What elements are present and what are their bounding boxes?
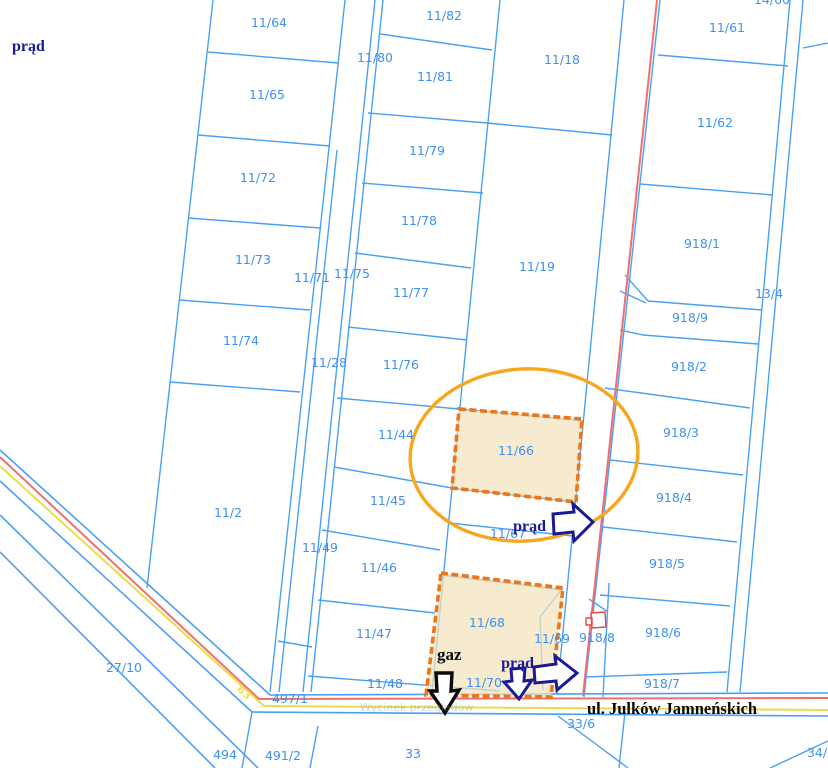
parcel-label-11-47: 11/47: [356, 626, 392, 641]
parcel-label-11-74: 11/74: [223, 333, 259, 348]
parcel-boundaries-strips: [270, 0, 383, 692]
parcel-label-11-62: 11/62: [697, 115, 733, 130]
parcel-label-918-5: 918/5: [649, 556, 685, 571]
gasmark-label-4: 63: [234, 683, 254, 703]
parcel-label-11-46: 11/46: [361, 560, 397, 575]
parcel-label-918-3: 918/3: [663, 425, 699, 440]
parcel-label-11-19: 11/19: [519, 259, 555, 274]
parcel-label-11-61: 11/61: [709, 20, 745, 35]
road-edges: [0, 450, 828, 768]
gas-label-3: gaz: [437, 645, 462, 664]
parcel-label-11-48: 11/48: [367, 676, 403, 691]
parcel-label-491-2: 491/2: [265, 748, 301, 763]
parcel-label-11-66: 11/66: [498, 443, 534, 458]
parcel-label-14-60: 14/60: [754, 0, 790, 7]
power-label-1: prąd: [513, 518, 546, 535]
parcel-label-11-77: 11/77: [393, 285, 429, 300]
parcel-label-33-6: 33/6: [567, 716, 595, 731]
power-label-2: prąd: [501, 655, 534, 672]
parcel-label-918-4: 918/4: [656, 490, 692, 505]
parcel-label-11-73: 11/73: [235, 252, 271, 267]
map-viewport: 11/6414/6011/8211/1811/6111/8011/8111/65…: [0, 0, 828, 768]
building-outline: [586, 612, 606, 628]
parcel-label-11-82: 11/82: [426, 8, 462, 23]
parcel-boundaries-south: [242, 712, 828, 768]
parcel-label-918-6: 918/6: [645, 625, 681, 640]
watermark-text: Wycinek przeglądow: [360, 701, 473, 714]
parcel-label-27-10: 27/10: [106, 660, 142, 675]
street-name-label: ul. Julków Jamneńskich: [587, 699, 757, 718]
parcel-label-11-18: 11/18: [544, 52, 580, 67]
parcel-label-11-45: 11/45: [370, 493, 406, 508]
parcel-label-11-44: 11/44: [378, 427, 414, 442]
parcel-label-33: 33: [405, 746, 421, 761]
parcel-label-11-81: 11/81: [417, 69, 453, 84]
parcel-label-11-65: 11/65: [249, 87, 285, 102]
parcel-label-918-7: 918/7: [644, 676, 680, 691]
parcel-label-11-68: 11/68: [469, 615, 505, 630]
parcel-label-13-4: 13/4: [755, 286, 783, 301]
parcel-label-11-28: 11/28: [311, 355, 347, 370]
parcel-label-34-7: 34/7: [807, 745, 828, 760]
parcel-label-11-76: 11/76: [383, 357, 419, 372]
parcel-boundaries-left-column: [147, 0, 338, 588]
parcel-label-494: 494: [213, 747, 237, 762]
parcel-label-497-1: 497/1: [272, 691, 308, 706]
parcel-label-11-69: 11/69: [534, 631, 570, 646]
parcel-label-918-8: 918/8: [579, 630, 615, 645]
parcel-label-918-9: 918/9: [672, 310, 708, 325]
parcel-label-11-71: 11/71: [294, 270, 330, 285]
power-label-0: prąd: [12, 38, 45, 55]
parcel-label-11-79: 11/79: [409, 143, 445, 158]
parcel-label-11-64: 11/64: [251, 15, 287, 30]
parcel-label-11-49: 11/49: [302, 540, 338, 555]
parcel-label-11-72: 11/72: [240, 170, 276, 185]
map-canvas[interactable]: 11/6414/6011/8211/1811/6111/8011/8111/65…: [0, 0, 828, 768]
parcel-label-11-78: 11/78: [401, 213, 437, 228]
parcel-label-11-75: 11/75: [334, 266, 370, 281]
parcel-label-11-70: 11/70: [466, 675, 502, 690]
parcel-label-11-80: 11/80: [357, 50, 393, 65]
parcel-label-918-2: 918/2: [671, 359, 707, 374]
parcel-label-11-2: 11/2: [214, 505, 242, 520]
parcel-label-918-1: 918/1: [684, 236, 720, 251]
